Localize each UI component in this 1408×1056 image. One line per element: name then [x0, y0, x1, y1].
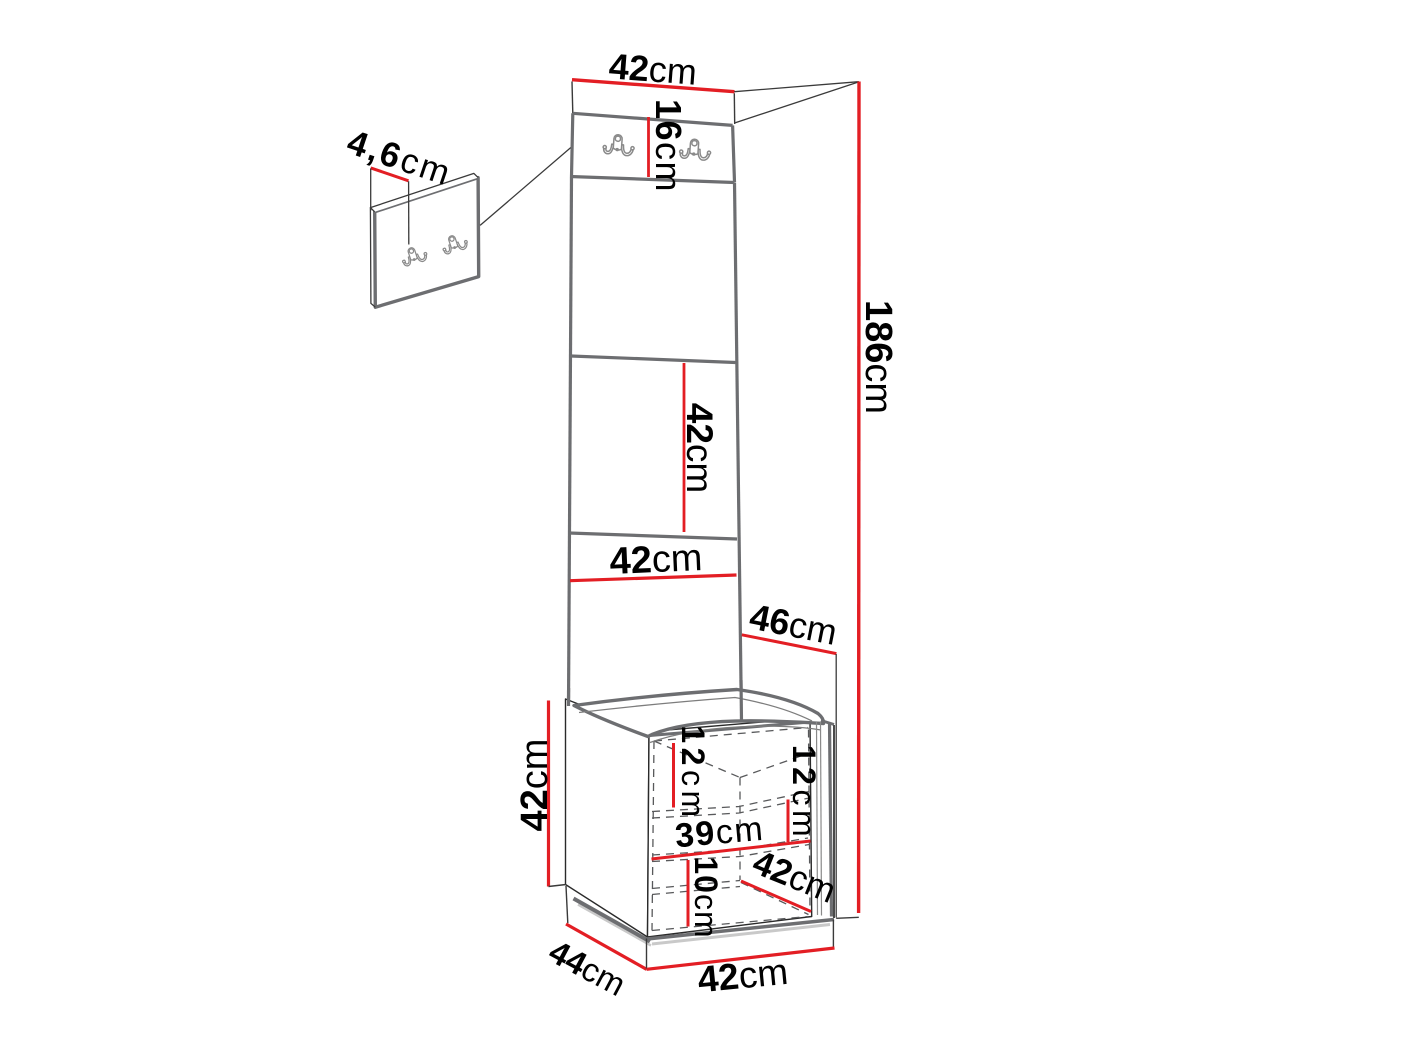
- svg-text:42cm: 42cm: [608, 45, 699, 92]
- svg-text:42cm: 42cm: [696, 951, 790, 1000]
- svg-text:42cm: 42cm: [609, 537, 704, 583]
- svg-text:42cm: 42cm: [514, 739, 556, 832]
- svg-text:12cm: 12cm: [675, 725, 711, 821]
- svg-text:12cm: 12cm: [786, 745, 822, 841]
- svg-text:39cm: 39cm: [673, 810, 765, 856]
- svg-text:42cm: 42cm: [679, 403, 720, 493]
- svg-text:16cm: 16cm: [648, 99, 689, 193]
- svg-text:10cm: 10cm: [688, 856, 724, 938]
- svg-text:186cm: 186cm: [857, 300, 899, 414]
